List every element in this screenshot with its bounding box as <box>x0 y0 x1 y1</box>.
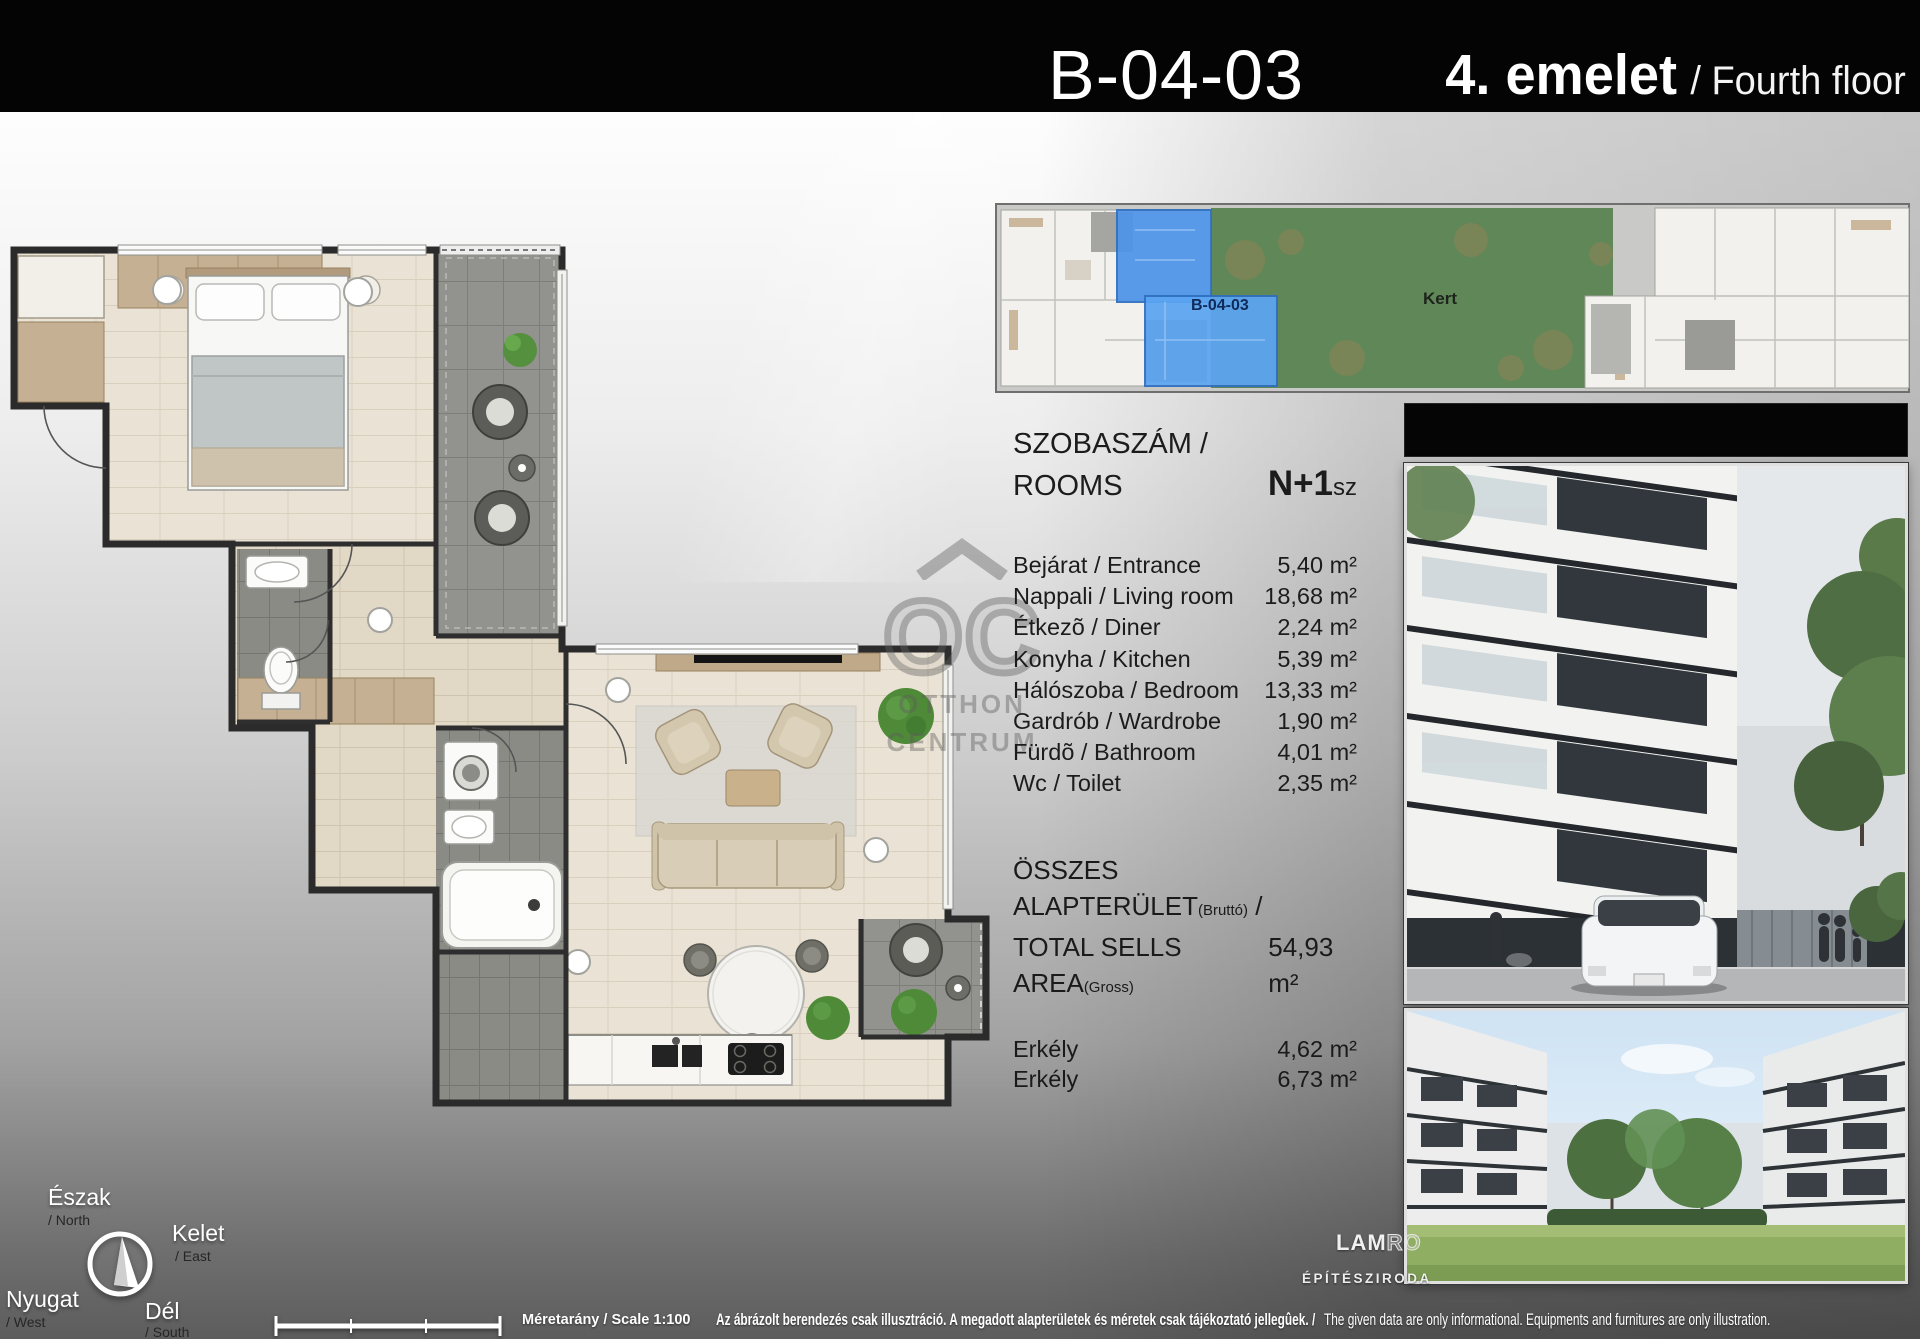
logo-subtitle: ÉPÍTÉSZIRODA <box>1302 1271 1432 1286</box>
totals-title-hu: ÖSSZES ALAPTERÜLET(Bruttó) / <box>1013 852 1357 929</box>
rooms-count: N+1sz <box>1268 464 1357 508</box>
table-row: Konyha / Kitchen5,39 m² <box>1013 644 1357 675</box>
apartment-floor-plan <box>0 150 1000 1150</box>
floorplan-sheet: B-04-03 4. emelet / Fourth floor <box>0 0 1920 1339</box>
compass-south-label: Dél <box>145 1298 180 1325</box>
compass-south-sublabel: / South <box>145 1324 189 1339</box>
car <box>1571 896 1727 996</box>
table-row: Erkély4,62 m² <box>1013 1034 1357 1064</box>
compass-west-sublabel: / West <box>6 1314 45 1330</box>
room-rows: Bejárat / Entrance5,40 m² Nappali / Livi… <box>1013 550 1357 800</box>
corridor-floor <box>312 728 436 890</box>
architect-logo: LAM RO ÉPÍTÉSZIRODA <box>1302 1232 1432 1286</box>
scale-bar <box>272 1314 504 1338</box>
bedroom-furniture <box>18 254 380 490</box>
rooms-title-row: ROOMS N+1sz <box>1013 464 1357 508</box>
totals-title-en: TOTAL SELLS AREA(Gross) <box>1013 929 1268 1006</box>
room-area: 5,40 m² <box>1277 550 1357 581</box>
balcony-area: 6,73 m² <box>1277 1064 1357 1094</box>
room-label: Fürdõ / Bathroom <box>1013 737 1196 768</box>
table-row: Fürdõ / Bathroom4,01 m² <box>1013 737 1357 768</box>
overview-unit-label: B-04-03 <box>1191 297 1249 314</box>
table-row: Étkezõ / Diner2,24 m² <box>1013 612 1357 643</box>
totals-title-en-row: TOTAL SELLS AREA(Gross) 54,93 m² <box>1013 929 1357 1006</box>
kitchen-counter <box>568 1035 792 1085</box>
unit-code: B-04-03 <box>1048 40 1304 110</box>
balcony-area: 4,62 m² <box>1277 1034 1357 1064</box>
balcony-top-floor <box>436 250 562 636</box>
compass-icon <box>84 1228 156 1300</box>
room-area: 2,24 m² <box>1277 612 1357 643</box>
rooms-title-hu: SZOBASZÁM / <box>1013 424 1357 464</box>
room-label: Étkezõ / Diner <box>1013 612 1161 643</box>
logo-part1: LAM <box>1336 1232 1387 1254</box>
total-area-value: 54,93 m² <box>1268 929 1357 1001</box>
room-label: Gardrób / Wardrobe <box>1013 706 1221 737</box>
room-label: Nappali / Living room <box>1013 581 1234 612</box>
table-row: Wc / Toilet2,35 m² <box>1013 768 1357 799</box>
totals-block: ÖSSZES ALAPTERÜLET(Bruttó) / TOTAL SELLS… <box>1013 852 1357 1094</box>
room-label: Konyha / Kitchen <box>1013 644 1191 675</box>
table-row: Bejárat / Entrance5,40 m² <box>1013 550 1357 581</box>
totals-title-hu-row: ÖSSZES ALAPTERÜLET(Bruttó) / <box>1013 852 1357 929</box>
logo-part2: RO <box>1387 1232 1422 1254</box>
building-facade-photo <box>1404 463 1908 1004</box>
room-area: 5,39 m² <box>1277 644 1357 675</box>
compass-east-label: Kelet <box>172 1220 224 1247</box>
compass-north-sublabel: / North <box>48 1212 90 1228</box>
balcony-label: Erkély <box>1013 1034 1078 1064</box>
floor-overview-plan: B-04-03 Kert <box>995 200 1910 396</box>
floor-title-en: / Fourth floor <box>1691 61 1906 101</box>
room-area: 2,35 m² <box>1277 768 1357 799</box>
room-label: Hálószoba / Bedroom <box>1013 675 1239 706</box>
floor-title: 4. emelet / Fourth floor <box>1445 47 1906 104</box>
entry-floor <box>436 952 566 1103</box>
overview-garden-label: Kert <box>1423 289 1457 308</box>
disclaimer: Az ábrázolt berendezés csak illusztráció… <box>716 1311 1770 1330</box>
compass-west-label: Nyugat <box>6 1286 79 1313</box>
rooms-table: SZOBASZÁM / ROOMS N+1sz Bejárat / Entran… <box>1013 424 1357 800</box>
table-row: Nappali / Living room18,68 m² <box>1013 581 1357 612</box>
corridor2-floor <box>436 636 566 728</box>
scale-label: Méretarány / Scale 1:100 <box>522 1312 690 1328</box>
courtyard-photo <box>1404 1008 1908 1284</box>
table-row: Gardrób / Wardrobe1,90 m² <box>1013 706 1357 737</box>
floor-title-hu: 4. emelet <box>1445 47 1677 104</box>
balcony-rows: Erkély4,62 m² Erkély6,73 m² <box>1013 1034 1357 1094</box>
room-area: 18,68 m² <box>1264 581 1357 612</box>
disclaimer-hu: Az ábrázolt berendezés csak illusztráció… <box>716 1311 1315 1330</box>
room-label: Bejárat / Entrance <box>1013 550 1201 581</box>
table-row: Hálószoba / Bedroom13,33 m² <box>1013 675 1357 706</box>
table-row: Erkély6,73 m² <box>1013 1064 1357 1094</box>
compass-north-label: Észak <box>48 1184 111 1211</box>
header-bar: B-04-03 4. emelet / Fourth floor <box>0 0 1920 112</box>
room-label: Wc / Toilet <box>1013 768 1121 799</box>
photo-caption-bar <box>1404 403 1908 457</box>
balcony-label: Erkély <box>1013 1064 1078 1094</box>
room-area: 1,90 m² <box>1277 706 1357 737</box>
rooms-title-en: ROOMS <box>1013 466 1123 506</box>
disclaimer-en: The given data are only informational. E… <box>1324 1311 1770 1330</box>
room-area: 13,33 m² <box>1264 675 1357 706</box>
room-area: 4,01 m² <box>1277 737 1357 768</box>
compass-east-sublabel: / East <box>175 1248 211 1264</box>
